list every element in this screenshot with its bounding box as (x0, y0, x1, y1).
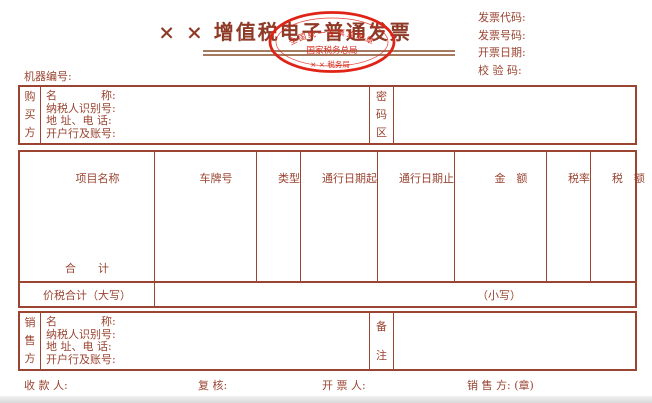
checker-label: 复 核: (198, 377, 227, 393)
tax-total-words-label: 价税合计（大写） (20, 283, 155, 306)
stamp-bottom-text: × × 税务局 (310, 59, 350, 69)
column-pass-date-start: 通行日期起 (301, 152, 378, 281)
seller-side-cell: 销售方 (20, 313, 41, 369)
machine-number-label: 机器编号: (24, 68, 72, 84)
stamp-arc-text: 全国统一发票监制章 (287, 27, 377, 46)
column-item-name: 项目名称 合 计 (20, 152, 155, 281)
column-tax-rate: 税率 (547, 152, 591, 281)
check-code-label: 校 验 码: (478, 62, 526, 80)
header-plate-number: 车牌号 (199, 172, 232, 185)
buyer-side-cell: 购买方 (20, 87, 41, 143)
header-pass-date-start: 通行日期起 (322, 172, 377, 185)
tax-total-value-cell: （小写） (155, 283, 635, 306)
bottom-page-edge (0, 396, 652, 403)
svg-text:全国统一发票监制章: 全国统一发票监制章 (287, 27, 377, 46)
seller-bank-account-label: 开户行及账号: (46, 354, 369, 366)
invoice-code-label: 发票代码: (478, 9, 526, 27)
payee-label: 收 款 人: (24, 377, 68, 393)
header-tax-rate: 税率 (568, 172, 590, 185)
stamp-middle-text: 国家税务总局 (306, 45, 357, 56)
items-table: 项目名称 合 计 车牌号 类型 通行日期起 通行日期止 金 额 税率 税 额 (18, 150, 637, 283)
buyer-section: 购买方 名 称: 纳税人识别号: 地 址、电 话: 开户行及账号: 密码区 (18, 85, 637, 145)
password-area (394, 87, 635, 143)
invoice-number-label: 发票号码: (478, 27, 526, 45)
vat-electronic-invoice-template: × × 增值税电子普通发票 全国统一发票监制章 国家税务总局 × × 税务局 发… (0, 0, 652, 403)
header-tax-amount: 税 额 (612, 172, 645, 185)
seller-name-label: 名 称: (46, 316, 369, 328)
remark-label: 备注 (376, 312, 388, 370)
total-row-label: 合 计 (20, 260, 154, 276)
remark-area (394, 313, 635, 369)
invoice-supervision-stamp-icon: 全国统一发票监制章 国家税务总局 × × 税务局 (266, 10, 398, 76)
seller-section: 销售方 名 称: 纳税人识别号: 地 址、电 话: 开户行及账号: 备注 (18, 311, 637, 371)
buyer-bank-account-label: 开户行及账号: (46, 128, 369, 140)
header-amount: 金 额 (494, 172, 527, 185)
seller-address-phone-label: 地 址、电 话: (46, 341, 369, 353)
buyer-side-label: 购买方 (24, 88, 36, 142)
buyer-name-label: 名 称: (46, 90, 369, 102)
seller-side-label: 销售方 (24, 314, 36, 368)
seller-fields: 名 称: 纳税人识别号: 地 址、电 话: 开户行及账号: (41, 313, 369, 369)
column-plate-number: 车牌号 (155, 152, 257, 281)
column-pass-date-end: 通行日期止 (378, 152, 455, 281)
buyer-fields: 名 称: 纳税人识别号: 地 址、电 话: 开户行及账号: (41, 87, 369, 143)
remark-label-cell: 备注 (369, 313, 394, 369)
drawer-label: 开 票 人: (322, 377, 366, 393)
buyer-address-phone-label: 地 址、电 话: (46, 115, 369, 127)
seller-seal-label: 销 售 方: (章) (467, 377, 534, 393)
column-tax-amount: 税 额 (591, 152, 645, 281)
invoice-meta-block: 发票代码: 发票号码: 开票日期: 校 验 码: (478, 9, 526, 79)
password-label-cell: 密码区 (369, 87, 394, 143)
header-type: 类型 (278, 172, 300, 185)
invoice-date-label: 开票日期: (478, 44, 526, 62)
tax-total-row: 价税合计（大写） （小写） (18, 283, 637, 308)
column-amount: 金 额 (455, 152, 547, 281)
buyer-taxid-label: 纳税人识别号: (46, 103, 369, 115)
tax-total-figures-label: （小写） (477, 287, 521, 303)
header-item-name: 项目名称 (75, 172, 119, 185)
seller-taxid-label: 纳税人识别号: (46, 329, 369, 341)
password-area-label: 密码区 (376, 88, 388, 142)
header-pass-date-end: 通行日期止 (399, 172, 454, 185)
column-type: 类型 (257, 152, 301, 281)
